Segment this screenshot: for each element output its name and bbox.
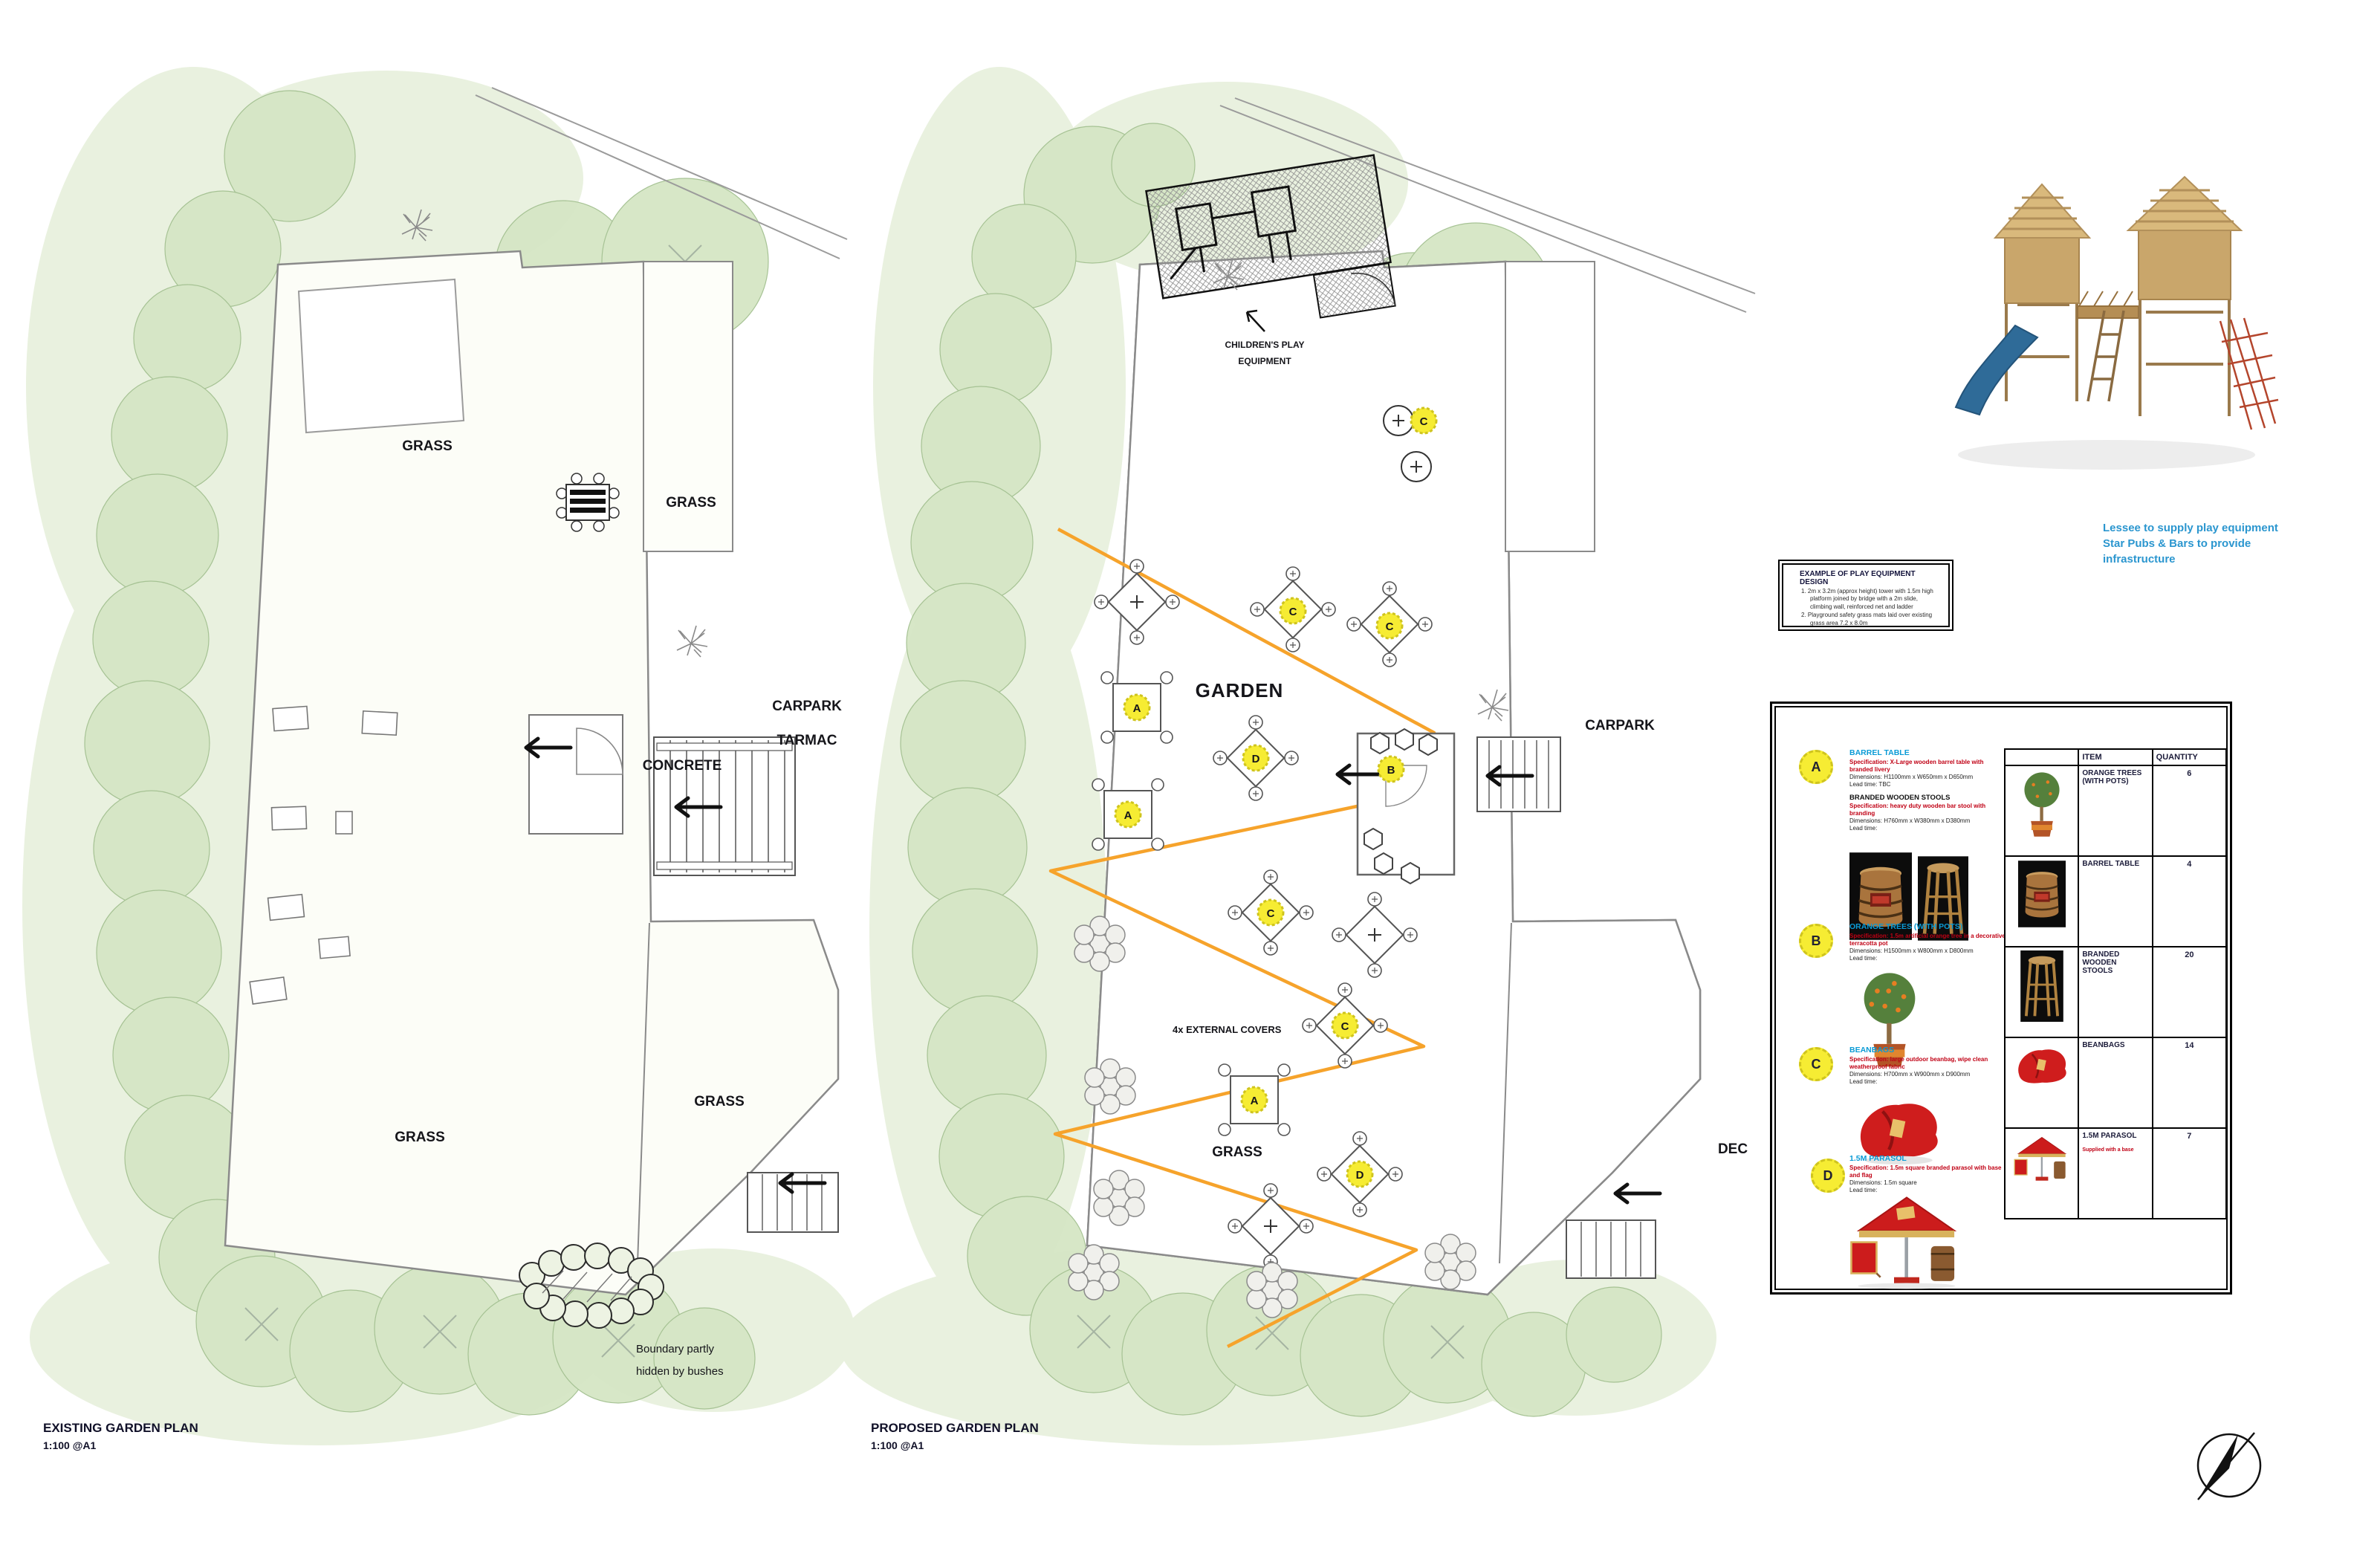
legend-badge-b: B bbox=[1799, 924, 1833, 958]
stairs-proposed bbox=[1477, 737, 1560, 811]
play-equipment-photo bbox=[1932, 134, 2281, 498]
label-grass-proposed: GRASS bbox=[1212, 1144, 1262, 1160]
label-grass-top: GRASS bbox=[402, 438, 453, 454]
label-grass-main: GRASS bbox=[395, 1130, 445, 1145]
table-header-quantity: QUANTITY bbox=[2153, 749, 2226, 765]
stool-icon bbox=[2005, 947, 2078, 1037]
parasol-note: Supplied with a base bbox=[2082, 1147, 2148, 1153]
svg-text:A: A bbox=[1124, 809, 1132, 822]
example-box-item: 2. Playground safety grass mats laid ove… bbox=[1791, 612, 1941, 627]
schedule-table: ITEM QUANTITY ORANGE TREES (WITH POTS) 6 bbox=[2004, 748, 2227, 1219]
photo-caption: Lessee to supply play equipment Star Pub… bbox=[2103, 520, 2303, 567]
svg-text:A: A bbox=[1133, 702, 1141, 715]
legend-item-barrel-table: BARREL TABLE Specification: X-Large wood… bbox=[1849, 748, 1998, 833]
label-carpark-proposed: CARPARK bbox=[1585, 718, 1655, 733]
steps-existing bbox=[748, 1173, 838, 1232]
svg-text:EQUIPMENT: EQUIPMENT bbox=[1238, 356, 1291, 366]
example-box-title: EXAMPLE OF PLAY EQUIPMENT DESIGN bbox=[1791, 570, 1941, 586]
table-row: BARREL TABLE 4 bbox=[2005, 856, 2226, 947]
svg-text:C: C bbox=[1267, 907, 1275, 920]
table-header-image bbox=[2005, 749, 2078, 765]
label-garden: GARDEN bbox=[1196, 679, 1284, 702]
table-row: 1.5M PARASOL Supplied with a base 7 bbox=[2005, 1128, 2226, 1219]
svg-text:D: D bbox=[1252, 753, 1260, 765]
legend-badge-d: D bbox=[1811, 1159, 1845, 1193]
label-deck: DEC bbox=[1718, 1141, 1748, 1157]
example-box-item: 1. 2m x 3.2m (approx height) tower with … bbox=[1791, 588, 1941, 611]
svg-text:hidden by bushes: hidden by bushes bbox=[636, 1365, 724, 1378]
parasol-icon bbox=[2005, 1128, 2078, 1219]
svg-text:A: A bbox=[1251, 1095, 1259, 1107]
table-header-item: ITEM bbox=[2078, 749, 2152, 765]
legend-badge-a: A bbox=[1799, 750, 1833, 784]
label-play-equipment: CHILDREN'S PLAY bbox=[1225, 340, 1304, 350]
proposed-plan-title: PROPOSED GARDEN PLAN 1:100 @A1 bbox=[871, 1419, 1039, 1453]
svg-text:C: C bbox=[1386, 621, 1394, 633]
svg-text:C: C bbox=[1341, 1020, 1349, 1033]
legend-item-parasol: 1.5M PARASOL Specification: 1.5m square … bbox=[1849, 1154, 2006, 1195]
barrel-icon bbox=[2005, 856, 2078, 947]
proposed-plan: A A A B C C C C C D D CHILDREN'S PLAY EQ… bbox=[840, 67, 1755, 1445]
legend-item-orange-trees: ORANGE TREES (WITH POTS) Specification: … bbox=[1849, 922, 2006, 963]
svg-text:C: C bbox=[1420, 415, 1428, 428]
svg-text:B: B bbox=[1387, 764, 1395, 777]
north-compass bbox=[2198, 1433, 2260, 1500]
label-grass-lower: GRASS bbox=[694, 1094, 745, 1109]
table-row: BEANBAGS 14 bbox=[2005, 1037, 2226, 1128]
label-concrete: CONCRETE bbox=[643, 758, 722, 774]
legend-panel: A BARREL TABLE Specification: X-Large wo… bbox=[1770, 702, 2232, 1295]
legend-item-beanbags: BEANBAGS Specification: large outdoor be… bbox=[1849, 1046, 2006, 1086]
example-of-play-equipment-box: EXAMPLE OF PLAY EQUIPMENT DESIGN 1. 2m x… bbox=[1782, 563, 1950, 627]
table-row: ORANGE TREES (WITH POTS) 6 bbox=[2005, 765, 2226, 856]
parasol-photo bbox=[1844, 1191, 1970, 1293]
legend-badge-c: C bbox=[1799, 1047, 1833, 1081]
existing-plan: GRASS GRASS CARPARK TARMAC CONCRETE GRAS… bbox=[22, 67, 855, 1445]
label-grass-strip: GRASS bbox=[666, 495, 716, 511]
garden-plan-sheet: GRASS GRASS CARPARK TARMAC CONCRETE GRAS… bbox=[0, 0, 2354, 1568]
label-external-covers: 4x EXTERNAL COVERS bbox=[1173, 1024, 1282, 1035]
label-tarmac: TARMAC bbox=[777, 733, 837, 748]
existing-plan-title: EXISTING GARDEN PLAN 1:100 @A1 bbox=[43, 1419, 198, 1453]
label-carpark: CARPARK bbox=[772, 699, 842, 714]
boundary-note: Boundary partly bbox=[636, 1343, 715, 1355]
table-row: BRANDED WOODEN STOOLS 20 bbox=[2005, 947, 2226, 1037]
beanbag-icon bbox=[2005, 1037, 2078, 1128]
svg-text:C: C bbox=[1289, 606, 1297, 618]
svg-text:D: D bbox=[1356, 1169, 1364, 1182]
orange-tree-icon bbox=[2005, 765, 2078, 856]
